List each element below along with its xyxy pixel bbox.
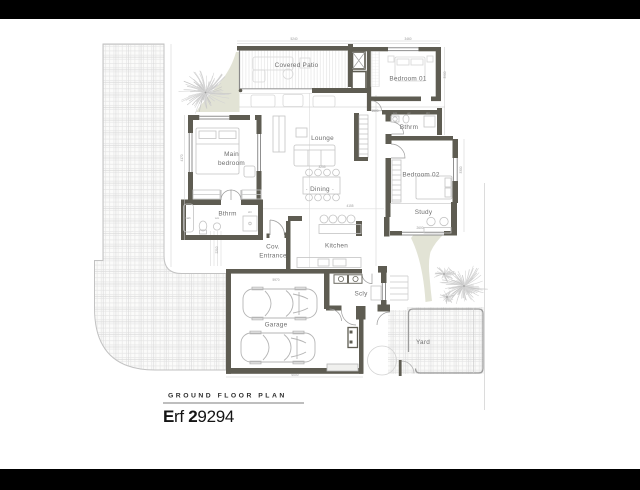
svg-text:3460: 3460: [404, 37, 411, 41]
svg-text:Kitchen: Kitchen: [325, 243, 348, 250]
svg-text:Main: Main: [224, 151, 239, 158]
svg-text:Entrance: Entrance: [259, 253, 287, 260]
svg-text:bedroom: bedroom: [218, 160, 245, 167]
svg-text:2600: 2600: [416, 226, 423, 230]
svg-text:wc: wc: [407, 111, 411, 115]
svg-text:Cov.: Cov.: [266, 244, 280, 251]
svg-text:Yard: Yard: [416, 339, 430, 346]
svg-text:4170: 4170: [180, 154, 184, 161]
svg-text:4155: 4155: [346, 204, 353, 208]
svg-text:Bthrm: Bthrm: [400, 124, 418, 131]
svg-text:shr: shr: [248, 210, 252, 214]
svg-text:6000: 6000: [291, 373, 298, 377]
svg-text:Bedroom 02: Bedroom 02: [402, 172, 440, 179]
svg-text:5240: 5240: [290, 37, 297, 41]
svg-text:2210: 2210: [215, 246, 219, 253]
svg-text:shr: shr: [426, 111, 430, 115]
svg-text:Erf 29294: Erf 29294: [163, 407, 234, 426]
svg-text:GROUND FLOOR PLAN: GROUND FLOOR PLAN: [168, 393, 287, 400]
svg-text:5970: 5970: [272, 278, 279, 282]
svg-text:Bedroom 01: Bedroom 01: [389, 76, 427, 83]
svg-text:3255: 3255: [318, 165, 325, 169]
svg-text:Bthrm: Bthrm: [218, 211, 236, 218]
svg-text:Covered Patio: Covered Patio: [275, 62, 319, 69]
svg-text:Scly: Scly: [354, 291, 368, 298]
svg-text:· Dining ·: · Dining ·: [306, 186, 334, 193]
svg-text:1500: 1500: [371, 109, 378, 113]
svg-text:Study: Study: [415, 209, 433, 216]
svg-text:bath: bath: [185, 216, 191, 220]
svg-text:3900: 3900: [443, 71, 447, 78]
svg-text:Garage: Garage: [265, 322, 288, 329]
svg-text:wm: wm: [393, 111, 398, 115]
svg-text:Lounge: Lounge: [311, 135, 334, 142]
svg-text:3300: 3300: [459, 166, 463, 173]
